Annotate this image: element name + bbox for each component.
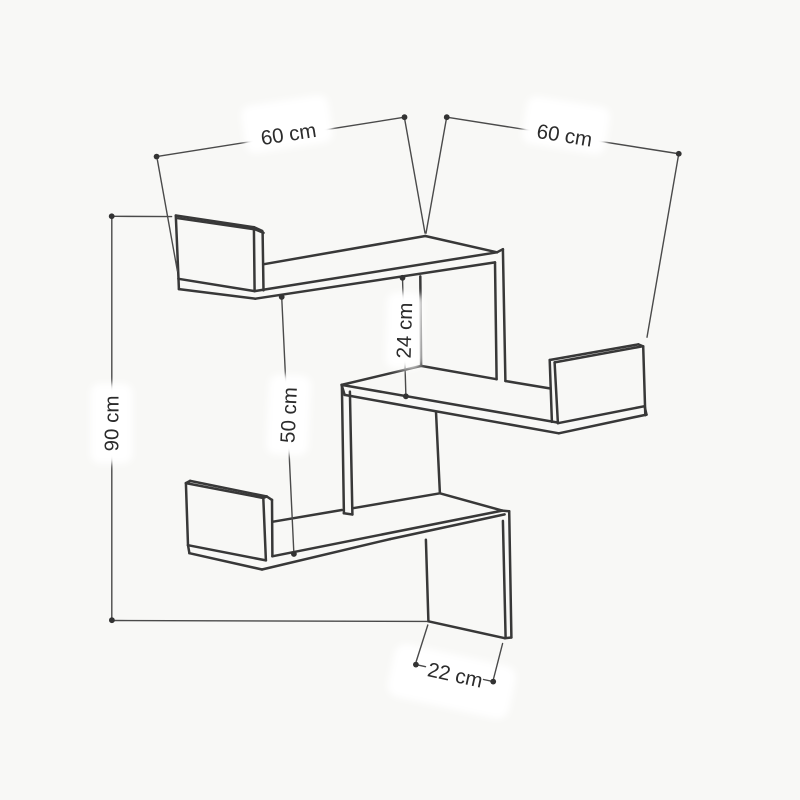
svg-text:50 cm: 50 cm <box>276 387 302 444</box>
svg-text:90 cm: 90 cm <box>101 396 124 452</box>
svg-text:24 cm: 24 cm <box>393 302 418 358</box>
